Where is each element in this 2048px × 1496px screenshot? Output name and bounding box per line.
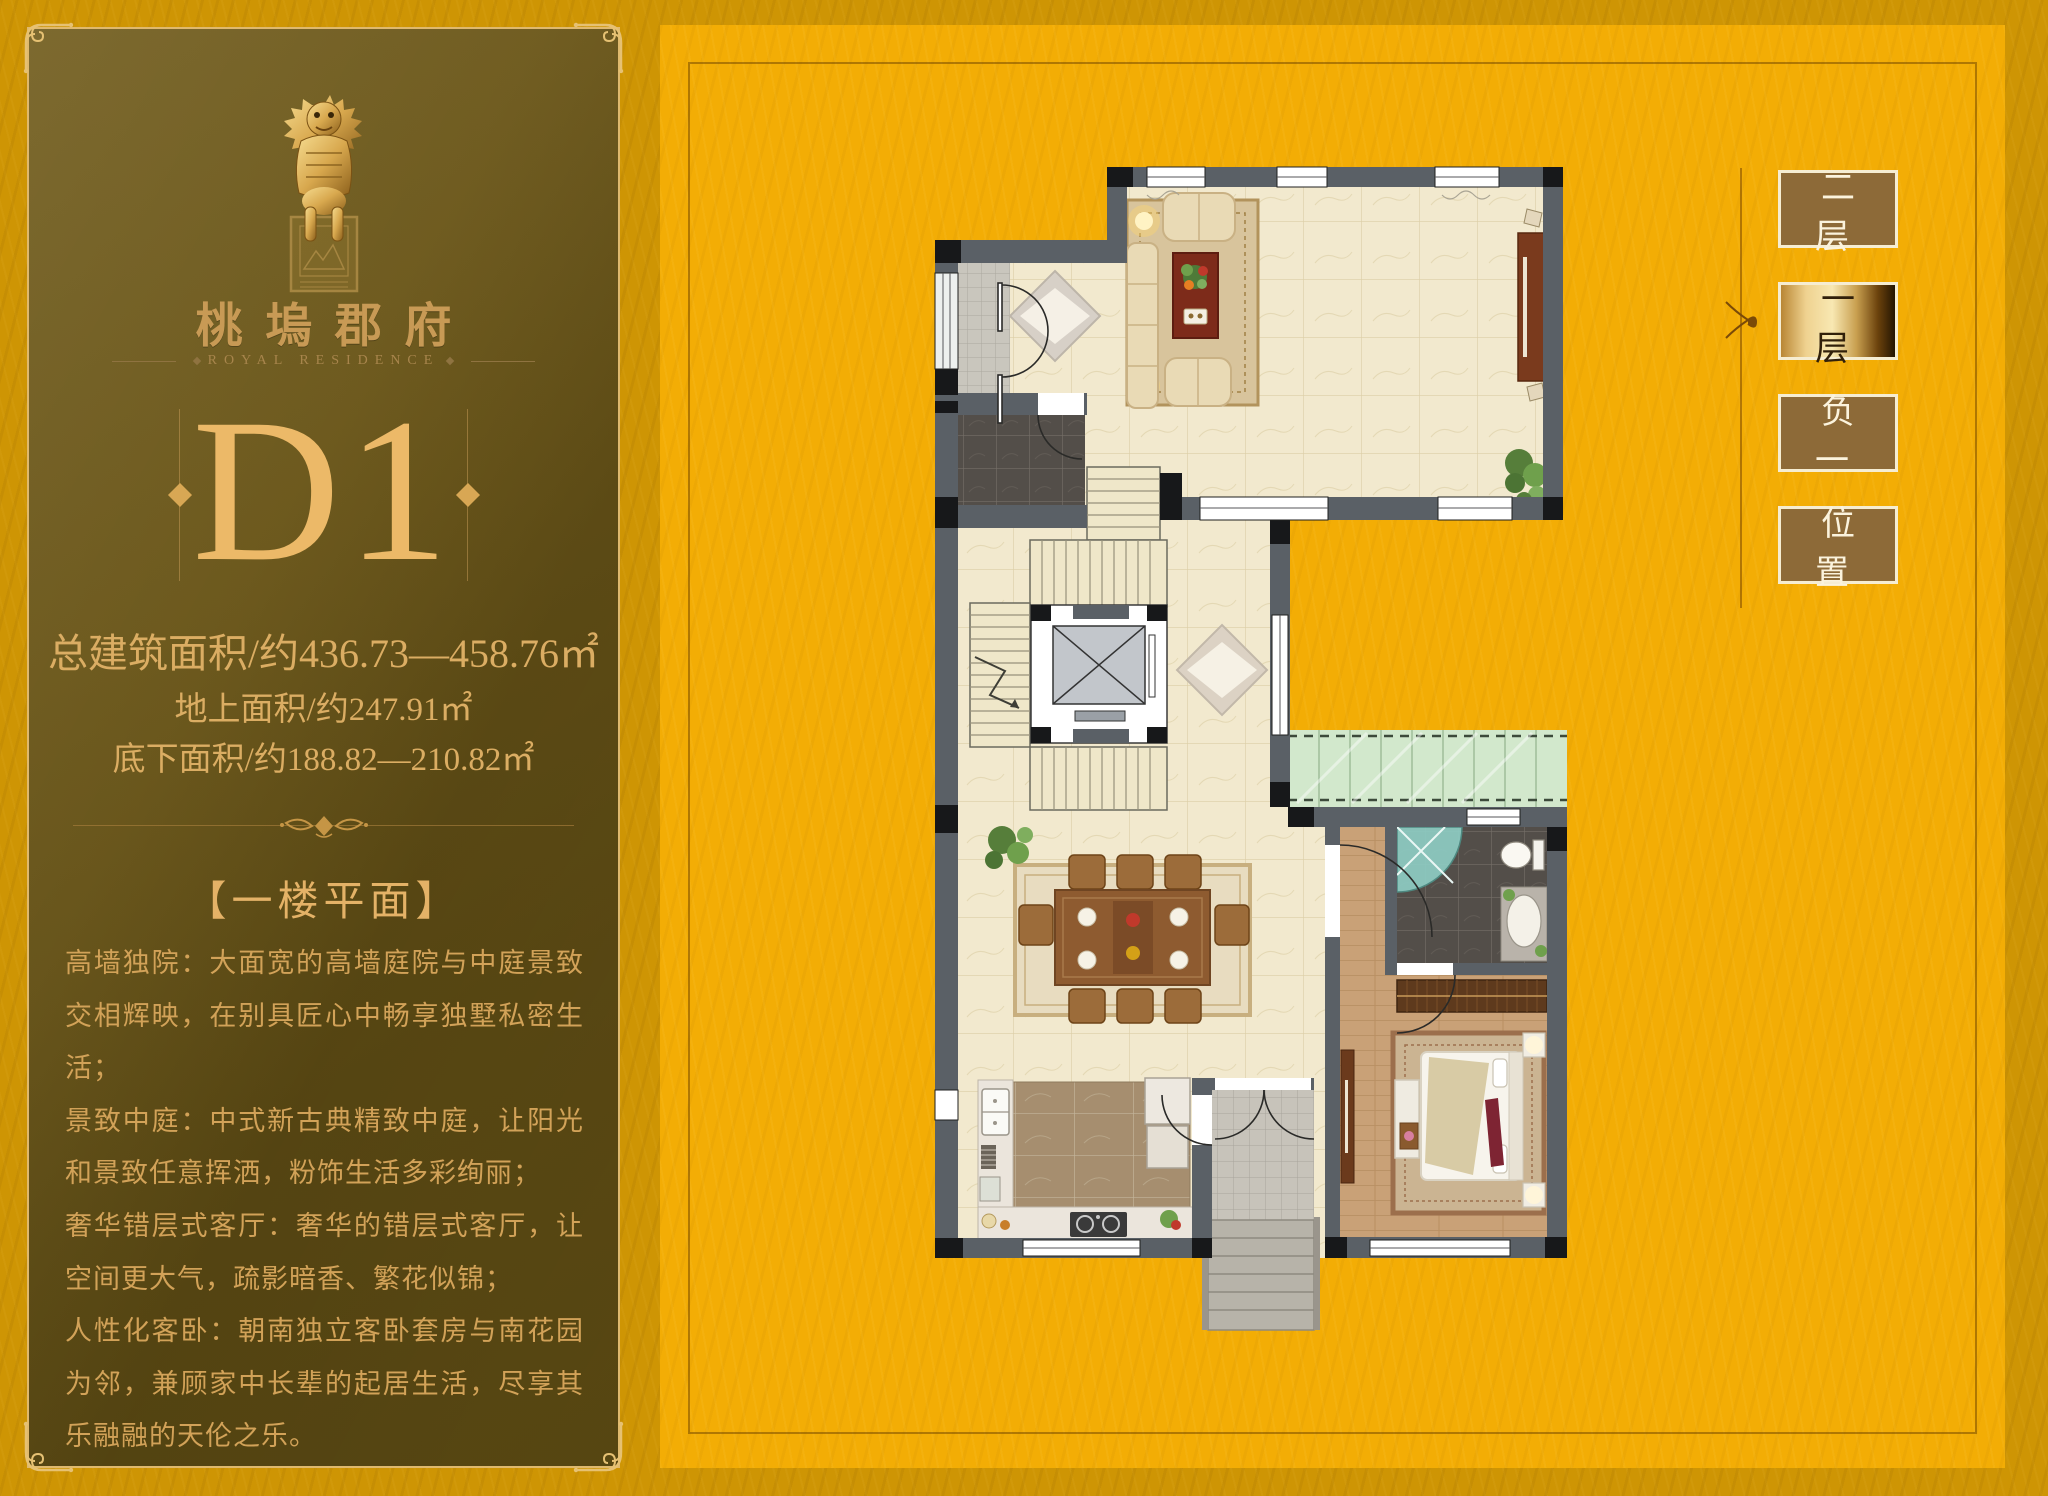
floor-button-b1[interactable]: 负一 xyxy=(1778,394,1898,472)
entry-steps xyxy=(1202,1217,1320,1330)
diamond-icon xyxy=(192,357,200,365)
unit-code-row: D1 xyxy=(29,381,618,611)
elevator xyxy=(1031,605,1167,743)
dining-set xyxy=(1015,855,1250,1023)
brand-name-en-row: ROYAL RESIDENCE xyxy=(29,353,618,369)
ornamental-divider xyxy=(73,813,574,839)
brand-name-en: ROYAL RESIDENCE xyxy=(208,353,440,369)
floor-plan xyxy=(897,105,1580,1340)
area-summary: 总建筑面积/约436.73—458.76㎡ 地上面积/约247.91㎡ 底下面积… xyxy=(29,623,618,785)
unit-ornament-right xyxy=(467,409,468,581)
unit-code: D1 xyxy=(29,381,618,601)
floor-button-1f[interactable]: 一层 xyxy=(1778,282,1898,360)
diamond-icon xyxy=(446,357,454,365)
page: 桃塢郡府 ROYAL RESIDENCE D1 总建筑面积/约436.73—45… xyxy=(0,0,2048,1496)
kitchen xyxy=(978,1078,1197,1240)
feature-paragraph: 人性化客卧：朝南独立客卧套房与南花园为邻，兼顾家中长辈的起居生活，尽享其乐融融的… xyxy=(65,1305,584,1463)
feature-paragraph: 高墙独院：大面宽的高墙庭院与中庭景致交相辉映，在别具匠心中畅享独墅私密生活； xyxy=(65,937,584,1095)
rule-line xyxy=(112,361,176,362)
above-ground-area: 地上面积/约247.91㎡ xyxy=(29,685,618,735)
corner-scroll-icon xyxy=(572,21,626,75)
corner-scroll-icon xyxy=(21,21,75,75)
unit-ornament-left xyxy=(179,409,180,581)
rule-line xyxy=(471,361,535,362)
floor-button-location[interactable]: 位置 xyxy=(1778,506,1898,584)
qilin-statue-icon xyxy=(259,79,389,309)
nav-scroll-icon xyxy=(1722,300,1760,344)
seal-stamp xyxy=(291,217,357,291)
flourish-icon xyxy=(254,813,394,839)
nav-divider-line xyxy=(1740,168,1742,608)
basement-area: 底下面积/约188.82—210.82㎡ xyxy=(29,735,618,785)
info-panel: 桃塢郡府 ROYAL RESIDENCE D1 总建筑面积/约436.73—45… xyxy=(27,27,620,1468)
floor-button-2f[interactable]: 二层 xyxy=(1778,170,1898,248)
section-title: 【一楼平面】 xyxy=(29,867,618,927)
feature-paragraph: 奢华错层式客厅：奢华的错层式客厅，让空间更大气，疏影暗香、繁花似锦； xyxy=(65,1200,584,1305)
total-area: 总建筑面积/约436.73—458.76㎡ xyxy=(29,623,618,685)
sunroom-glass xyxy=(1288,730,1567,807)
feature-paragraph: 景致中庭：中式新古典精致中庭，让阳光和景致任意挥洒，粉饰生活多彩绚丽； xyxy=(65,1095,584,1200)
brand-name: 桃塢郡府 xyxy=(29,287,618,356)
feature-paragraphs: 高墙独院：大面宽的高墙庭院与中庭景致交相辉映，在别具匠心中畅享独墅私密生活； 景… xyxy=(65,937,584,1463)
